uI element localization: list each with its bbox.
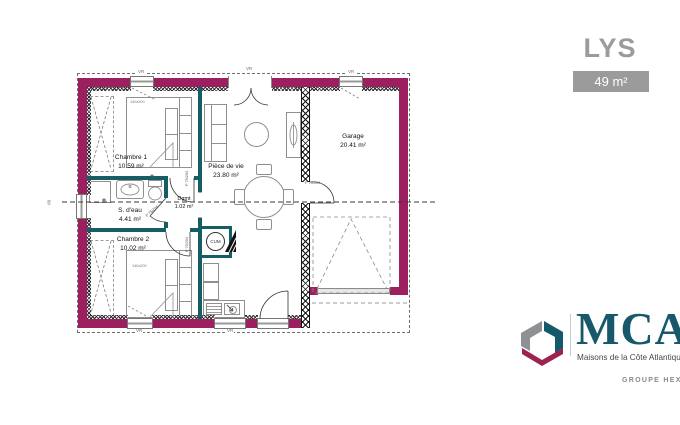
bed-size-label: 140x200 (132, 265, 147, 269)
glazed-door-piece-de-vie (257, 318, 289, 329)
room-label-degagement: Dgmt1.02 m² (175, 196, 194, 211)
window-sdeau (76, 194, 87, 219)
partition-stub (190, 228, 198, 232)
bed-pillows (165, 108, 178, 160)
shutter-label: VR (245, 67, 253, 72)
cube-face-teal (544, 321, 563, 353)
kitchen-counter (203, 282, 219, 300)
sideboard (286, 112, 301, 158)
bed-size-label: 140x200 (130, 101, 145, 105)
insulation-strip (153, 87, 228, 91)
toilet-tank (148, 180, 162, 187)
wall-top (362, 78, 408, 87)
shutter-label: VR (347, 70, 355, 75)
room-label-chambre2: Chambre 210.02 m² (117, 235, 149, 253)
cube-face-gray (521, 321, 542, 351)
sofa (204, 104, 227, 162)
partition-hall (198, 218, 202, 319)
logo-divider (570, 314, 571, 356)
insulation-strip (272, 87, 301, 91)
coffee-table (244, 122, 269, 147)
partition-chambre1-sdeau (87, 176, 168, 180)
wall-top (272, 78, 340, 87)
wall-bottom (152, 319, 215, 328)
room-label-chambre1: Chambre 110.59 m² (115, 153, 147, 171)
wall-right-garage (399, 87, 408, 295)
wall-bottom (78, 319, 128, 328)
fridge (203, 263, 219, 282)
room-label-piece-de-vie: Pièce de vie23.80 m² (208, 162, 243, 180)
wall-top (78, 78, 131, 87)
window-chambre1 (130, 76, 154, 87)
wall-top (153, 78, 228, 87)
window-garage (339, 76, 363, 87)
shutter-label: VR (135, 329, 143, 334)
closet-technique-wall (202, 226, 232, 229)
wall-left (78, 218, 87, 328)
door-label: P 75/204 (186, 171, 190, 186)
partition-stub (194, 176, 198, 180)
stove (224, 303, 240, 315)
entrance-opening (228, 76, 272, 88)
water-heater-label: CUM (207, 233, 224, 250)
mca-cube-logo (518, 318, 566, 370)
dining-chair (234, 189, 245, 205)
insulation-strip (310, 87, 340, 91)
closet-technique-wall (202, 255, 232, 258)
shutter-label: VR (137, 70, 145, 75)
bed-chambre2 (126, 250, 192, 318)
water-heater: CUM (206, 232, 225, 251)
dining-chair (256, 164, 272, 175)
door-label: P 75/204 (305, 182, 320, 186)
dining-chair (256, 219, 272, 230)
brand-tagline: Maisons de la Côte Atlantique (577, 353, 680, 362)
garage-door-jamb-right (390, 287, 408, 295)
insulation-strip (87, 87, 131, 91)
insulation-strip (87, 218, 91, 319)
wardrobe-chambre1 (90, 96, 114, 172)
brand-group: GROUPE HEXAOM (622, 377, 680, 384)
sink-drainer (206, 303, 222, 315)
floorplan-sheet: LYS 49 m² (0, 0, 680, 425)
wall-left (78, 87, 87, 195)
garage-separation-wall (301, 87, 310, 182)
brand-wordmark: MCA (576, 306, 680, 352)
dining-chair (283, 189, 294, 205)
area-badge: 49 m² (573, 71, 649, 92)
insulation-strip (362, 87, 399, 91)
model-title: LYS (572, 33, 648, 64)
garage-separation-wall (301, 203, 310, 328)
bed-pillows (165, 259, 178, 311)
room-label-garage: Garage20.41 m² (340, 132, 366, 150)
partition-sdeau-chambre2 (87, 228, 166, 232)
garage-sectional-door (317, 288, 390, 294)
door-label: P 75/204 (186, 237, 190, 252)
room-label-sdeau: S. d'eau4.41 m² (118, 206, 142, 224)
partition-sdeau-hall (164, 180, 168, 198)
washbasin (116, 180, 144, 199)
dining-table (243, 176, 285, 218)
wardrobe-chambre2 (90, 240, 114, 316)
shutter-label: VR (226, 329, 234, 334)
closet-technique-wall (229, 226, 232, 258)
shower-tray (89, 181, 111, 203)
partition-hall (198, 87, 202, 192)
window-dim-label: 60 (47, 199, 52, 206)
